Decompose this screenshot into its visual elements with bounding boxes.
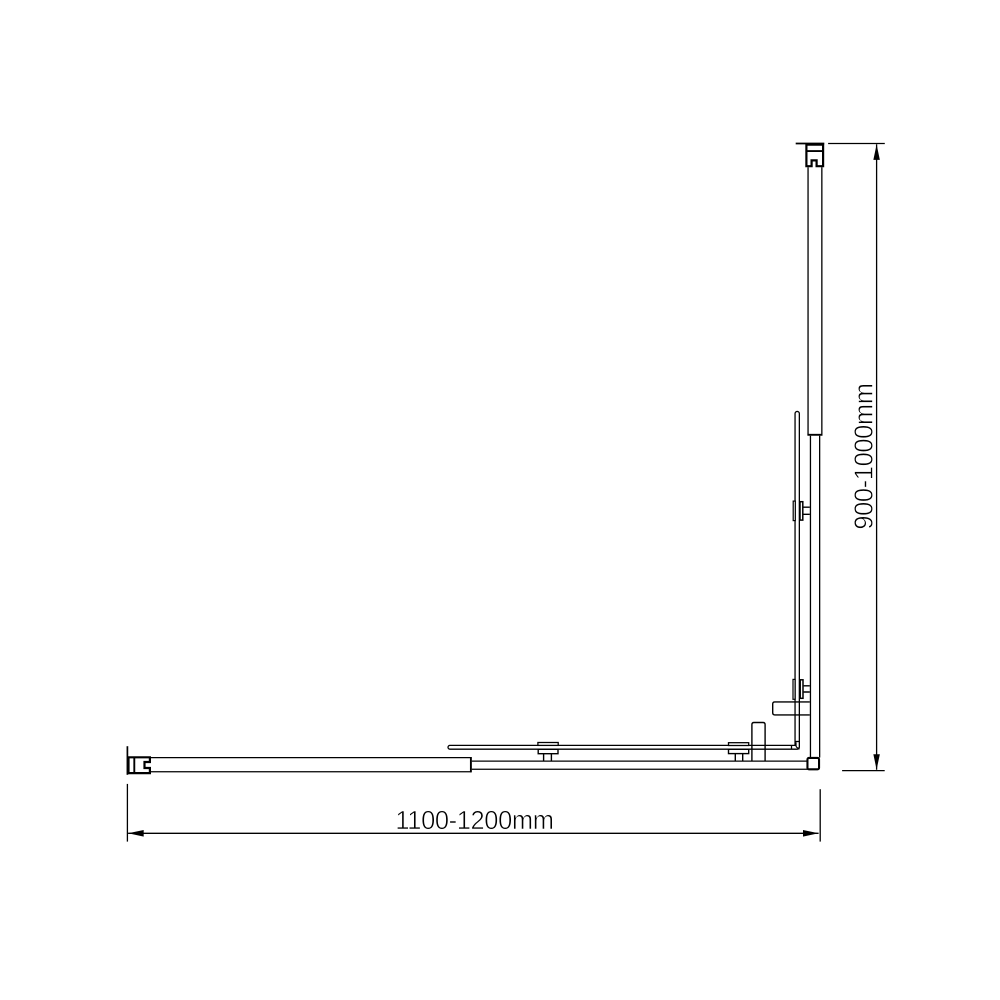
svg-text:900-1000mm: 900-1000mm [851,383,879,529]
svg-text:1100-1200mm: 1100-1200mm [395,807,553,835]
